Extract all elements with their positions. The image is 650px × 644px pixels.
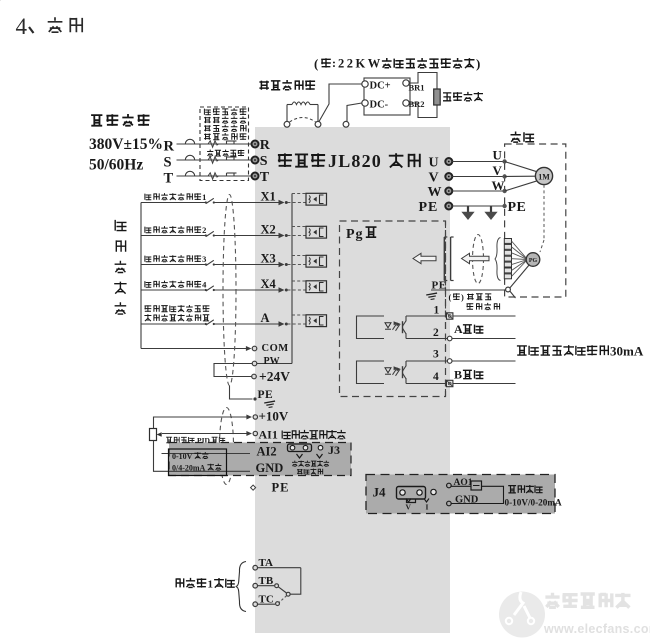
svg-text:4: 4 <box>16 14 28 39</box>
svg-text:0/4-20mA: 0/4-20mA <box>172 464 206 473</box>
svg-text:I: I <box>426 503 429 512</box>
svg-text:W: W <box>428 185 442 200</box>
svg-text:J4: J4 <box>373 485 387 500</box>
svg-text:1: 1 <box>434 305 440 317</box>
svg-text:PE: PE <box>258 389 274 401</box>
svg-text:U: U <box>429 156 439 171</box>
svg-text:A: A <box>261 311 270 325</box>
svg-text:JL820: JL820 <box>328 151 382 171</box>
svg-text:PW: PW <box>264 356 280 367</box>
svg-text:www.elecfans.com: www.elecfans.com <box>543 622 650 636</box>
svg-text:X4: X4 <box>261 277 277 291</box>
svg-text:3: 3 <box>433 349 439 361</box>
svg-text:2: 2 <box>202 225 206 235</box>
svg-text:T: T <box>260 170 270 185</box>
svg-text:0-10V/0-20mA: 0-10V/0-20mA <box>505 498 563 508</box>
svg-text:3: 3 <box>202 254 206 264</box>
svg-text:J3: J3 <box>328 443 340 457</box>
svg-text:X3: X3 <box>261 252 276 266</box>
svg-text:BR2: BR2 <box>409 99 425 109</box>
svg-text:): ) <box>461 292 464 302</box>
svg-text:B: B <box>454 368 462 382</box>
svg-text:X1: X1 <box>261 190 276 204</box>
svg-text:(: ( <box>449 292 452 302</box>
svg-text:S: S <box>164 154 172 170</box>
svg-text:0-10V: 0-10V <box>172 452 193 461</box>
svg-text:1M: 1M <box>538 173 550 182</box>
svg-text:A: A <box>454 322 463 336</box>
svg-text:PE: PE <box>508 200 527 215</box>
svg-text:1: 1 <box>202 192 206 202</box>
svg-text:GND: GND <box>455 495 479 506</box>
svg-text:DC-: DC- <box>370 100 389 111</box>
svg-text:1: 1 <box>208 579 214 591</box>
svg-text:PE: PE <box>419 200 439 215</box>
svg-text:DC+: DC+ <box>370 81 391 92</box>
svg-text:V: V <box>429 171 439 186</box>
svg-text:22KW: 22KW <box>338 57 383 71</box>
svg-text:V: V <box>406 503 412 512</box>
svg-text:30mA: 30mA <box>610 344 644 359</box>
svg-text:V: V <box>493 163 503 178</box>
svg-text:T: T <box>164 170 174 186</box>
svg-text:4: 4 <box>433 371 439 383</box>
svg-text:): ) <box>476 56 480 71</box>
svg-text:PE: PE <box>272 481 290 495</box>
svg-text:COM: COM <box>262 343 289 354</box>
svg-text::: : <box>332 56 336 70</box>
svg-text:+10V: +10V <box>259 408 289 423</box>
svg-text:(: ( <box>314 56 318 71</box>
svg-text:U: U <box>493 148 503 163</box>
svg-text:380V±15%: 380V±15% <box>89 136 163 153</box>
svg-text:Pg: Pg <box>346 227 364 242</box>
svg-text:X2: X2 <box>261 223 276 237</box>
svg-text:AI2: AI2 <box>257 445 277 459</box>
svg-text:S: S <box>260 154 268 169</box>
svg-text:AI1: AI1 <box>259 428 278 442</box>
svg-text:50/60Hz: 50/60Hz <box>89 157 143 174</box>
svg-text:R: R <box>164 138 175 154</box>
svg-text:BR1: BR1 <box>409 83 425 93</box>
svg-text:GND: GND <box>256 461 284 475</box>
svg-text:4: 4 <box>202 279 207 289</box>
svg-text:PG: PG <box>529 258 538 264</box>
svg-text:+24V: +24V <box>259 369 290 384</box>
svg-text:R: R <box>260 138 271 153</box>
svg-text:2: 2 <box>433 327 439 339</box>
